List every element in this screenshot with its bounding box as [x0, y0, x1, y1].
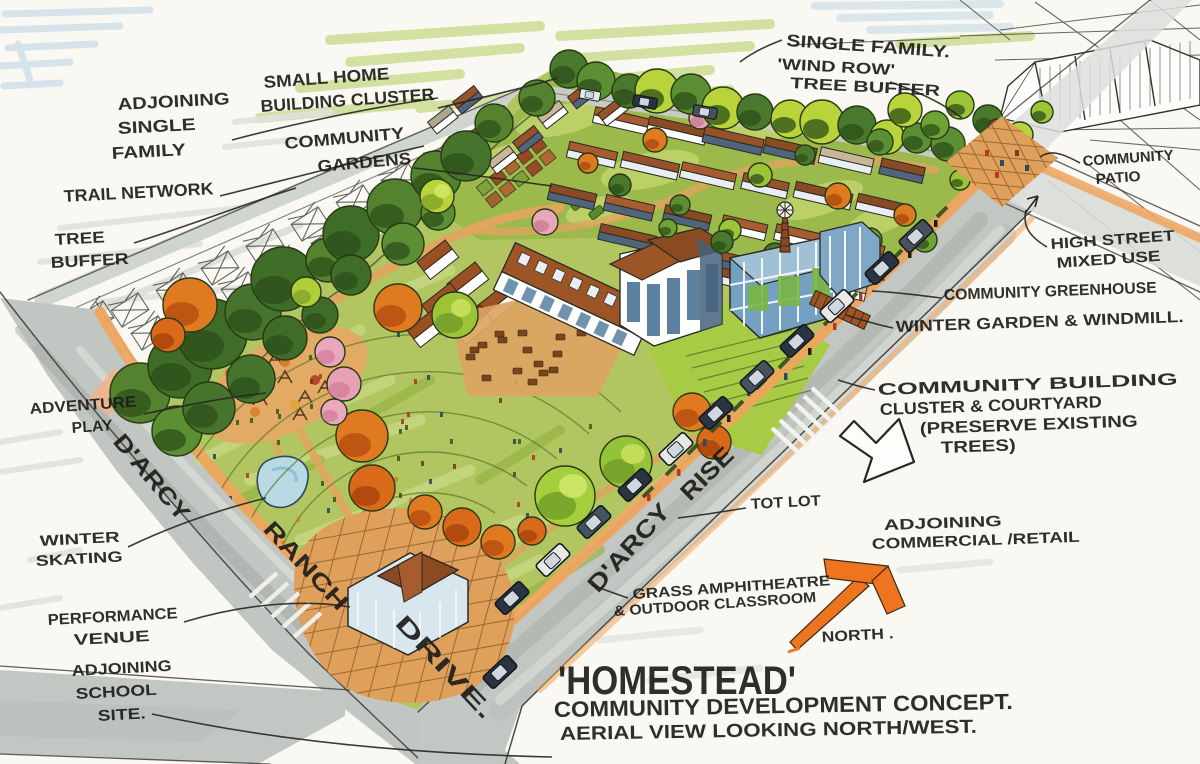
svg-text:PATIO: PATIO [1095, 169, 1141, 188]
svg-text:SITE.: SITE. [97, 706, 146, 725]
svg-text:FAMILY: FAMILY [111, 140, 187, 163]
svg-text:TREES): TREES) [941, 436, 1017, 457]
svg-text:PLAY: PLAY [71, 417, 114, 437]
svg-text:TREE: TREE [54, 229, 105, 249]
